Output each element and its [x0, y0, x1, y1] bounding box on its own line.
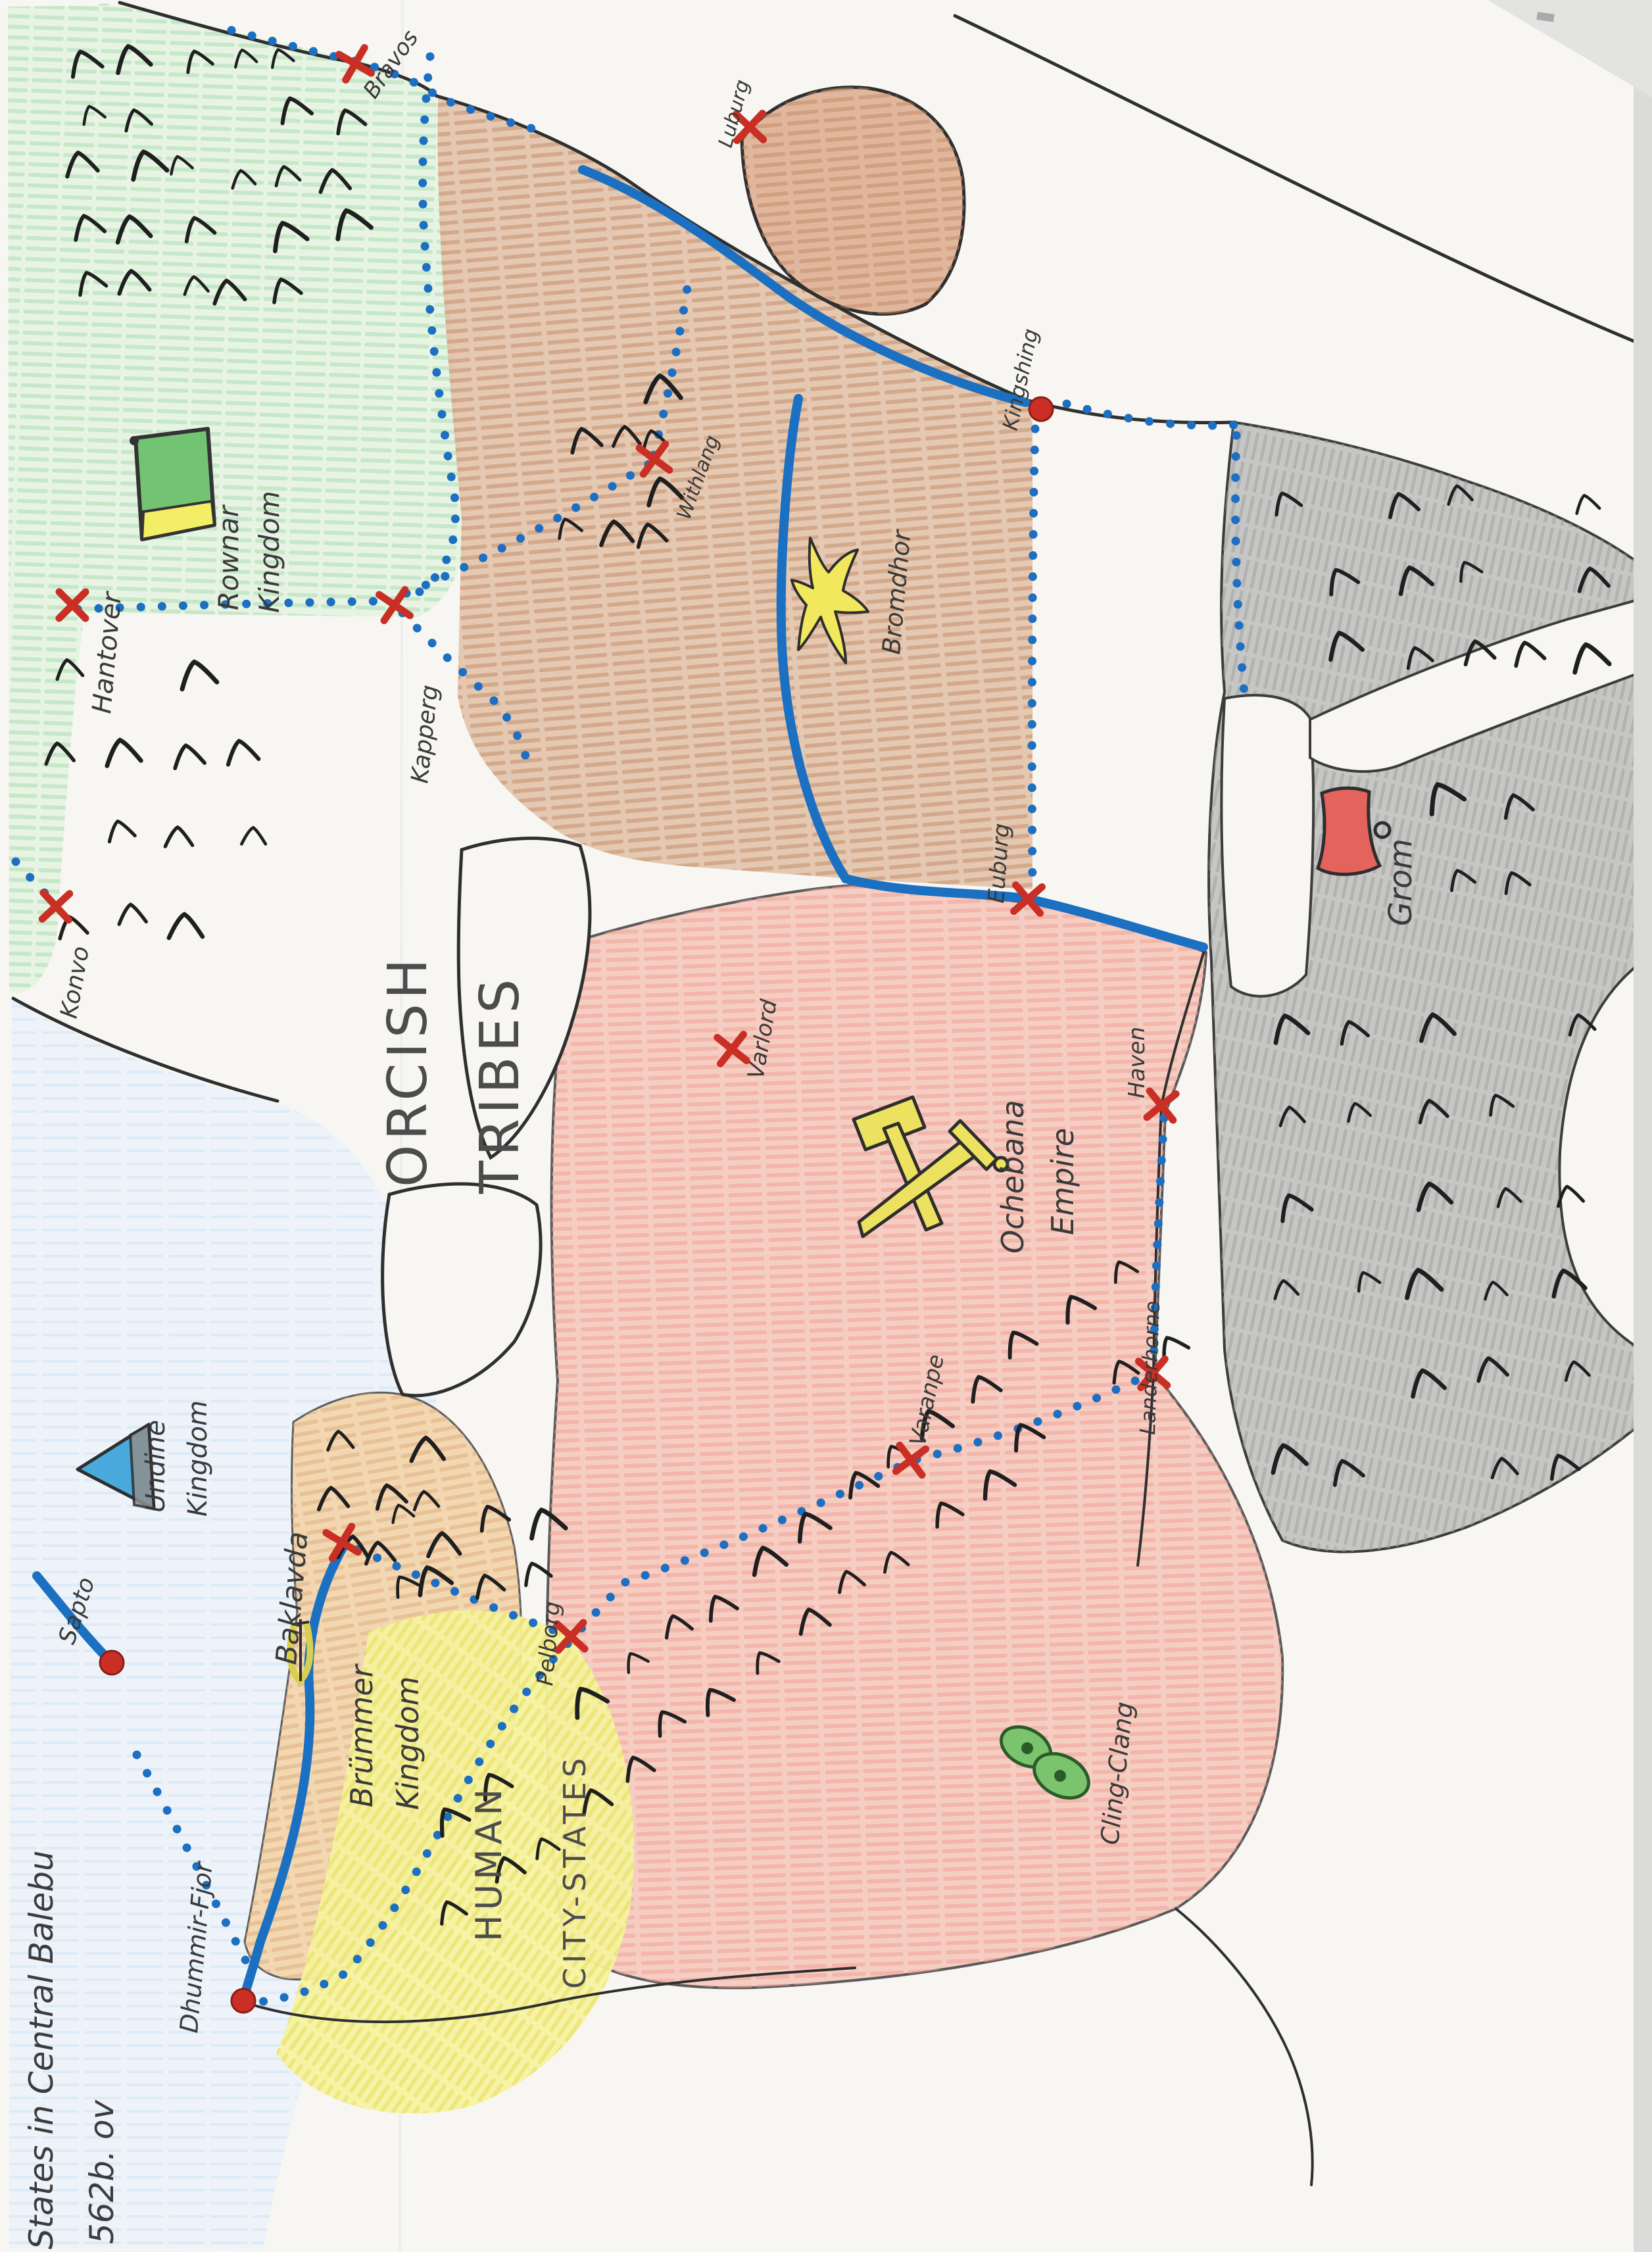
- region-label-ochebana-empire: Ochebana: [995, 1100, 1031, 1254]
- fjord-valley: [1221, 695, 1313, 996]
- city-label-landerhorne: Landerhorne: [1135, 1300, 1165, 1435]
- region-label-human-city-states: HUMAN: [468, 1784, 510, 1942]
- region-label-br-mmer-kingdom: Brümmer: [344, 1663, 379, 1807]
- city-label-haven: Haven: [1124, 1027, 1150, 1098]
- region-label-ochebana-empire: Empire: [1045, 1128, 1081, 1235]
- region-grom-mountains: [1209, 422, 1652, 1552]
- region-label-grom: Grom: [1382, 839, 1419, 926]
- region-label-undine-kingdom: Kingdom: [183, 1400, 213, 1517]
- scanner-edge: [1634, 0, 1652, 2252]
- map-title-line1: States in Central Balebu: [22, 1850, 61, 2249]
- map-title-line2: 562b. ov: [83, 2099, 121, 2244]
- region-label-rownar-kingdom: Kingdom: [253, 491, 285, 613]
- map-canvas: RownarKingdomORCISHTRIBESOchebanaEmpireH…: [0, 0, 1652, 2252]
- region-label-undine-kingdom: Undine: [141, 1420, 171, 1513]
- region-label-human-city-states: CITY-STATES: [557, 1753, 593, 1989]
- region-label-orcish-tribes: TRIBES: [469, 975, 531, 1194]
- city-label-euburg: Euburg: [983, 822, 1015, 904]
- region-label-rownar-kingdom: Rownar: [212, 504, 245, 610]
- region-label-br-mmer-kingdom: Kingdom: [390, 1677, 425, 1810]
- rownar-flag-icon: [130, 429, 214, 539]
- city-marker-sapto: [99, 1650, 124, 1675]
- region-label-orcish-tribes: ORCISH: [377, 954, 439, 1187]
- scanned-map-page: RownarKingdomORCISHTRIBESOchebanaEmpireH…: [0, 0, 1652, 2252]
